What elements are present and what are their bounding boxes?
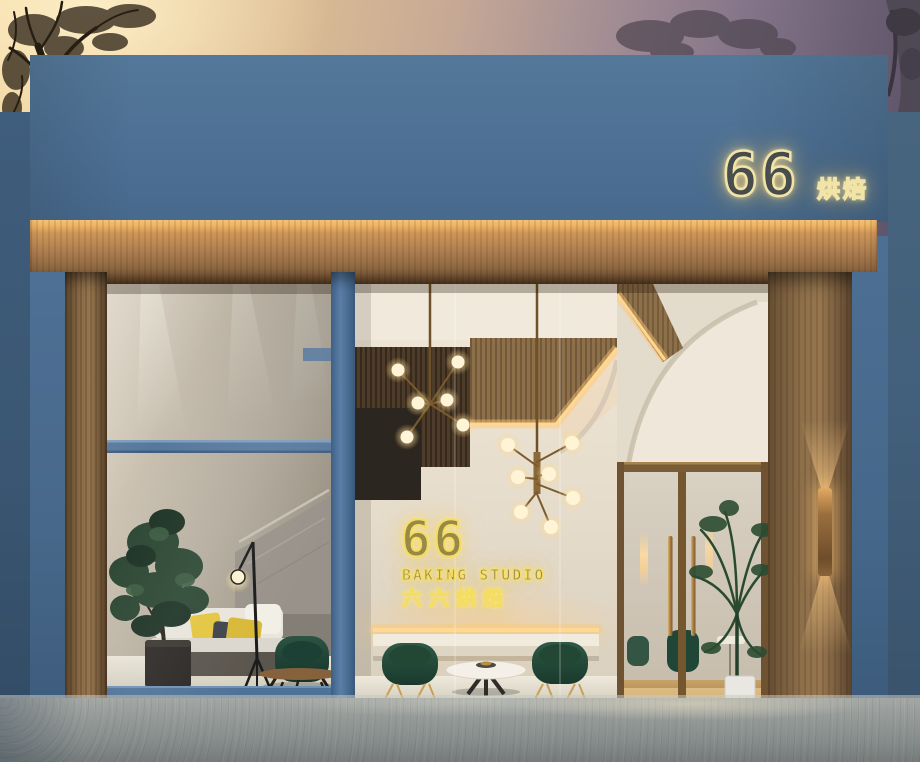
door-handle-left xyxy=(668,536,673,636)
right-blue-pier xyxy=(852,272,888,710)
display-window-left xyxy=(107,284,331,695)
wood-column-left xyxy=(65,272,107,702)
wood-awning xyxy=(30,220,877,284)
left-side-wall xyxy=(0,112,30,710)
door-center-stile xyxy=(678,472,686,710)
wall-sconce xyxy=(818,488,832,576)
neon-wall-sign: 66 BAKING STUDIO 六六烘焙 xyxy=(401,513,601,623)
neon-sign-en: BAKING STUDIO xyxy=(402,566,545,584)
center-glass-section xyxy=(355,284,617,700)
parapet-sign-number: 66 xyxy=(722,144,798,206)
sidewalk xyxy=(0,698,920,762)
corner-tree-silhouette xyxy=(886,0,920,112)
glass-reflection xyxy=(107,284,331,695)
window-divider-column xyxy=(331,272,355,702)
left-blue-pier xyxy=(30,272,65,702)
parapet-sign-cn: 烘焙 xyxy=(817,177,869,203)
parapet-sign: 66 烘焙 xyxy=(718,144,898,219)
neon-sign-cn: 六六烘焙 xyxy=(402,586,510,610)
storefront-render: 66 烘焙 66 BAKING STUDIO 六六烘焙 xyxy=(0,0,920,762)
neon-sign-number: 66 xyxy=(401,515,466,565)
entrance-section xyxy=(617,284,768,710)
door-handle-right xyxy=(691,536,696,636)
